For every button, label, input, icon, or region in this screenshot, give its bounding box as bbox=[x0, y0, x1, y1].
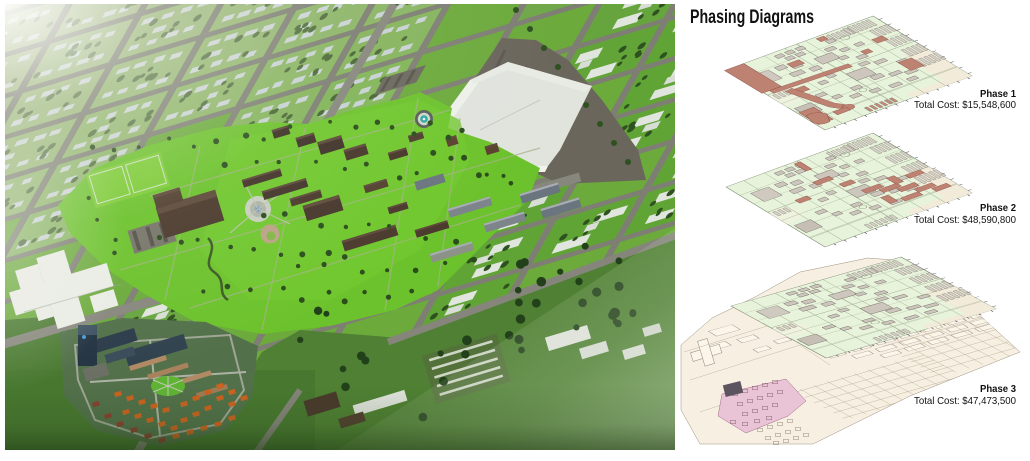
svg-text:Phase 2: Phase 2 bbox=[980, 203, 1016, 214]
svg-text:Total Cost: $47,473,500: Total Cost: $47,473,500 bbox=[914, 395, 1016, 407]
svg-text:Total Cost: $48,590,800: Total Cost: $48,590,800 bbox=[914, 214, 1016, 226]
svg-text:Total Cost: $15,548,600: Total Cost: $15,548,600 bbox=[914, 99, 1016, 111]
svg-text:Phase 3: Phase 3 bbox=[980, 384, 1016, 395]
svg-text:Phasing Diagrams: Phasing Diagrams bbox=[690, 7, 814, 28]
